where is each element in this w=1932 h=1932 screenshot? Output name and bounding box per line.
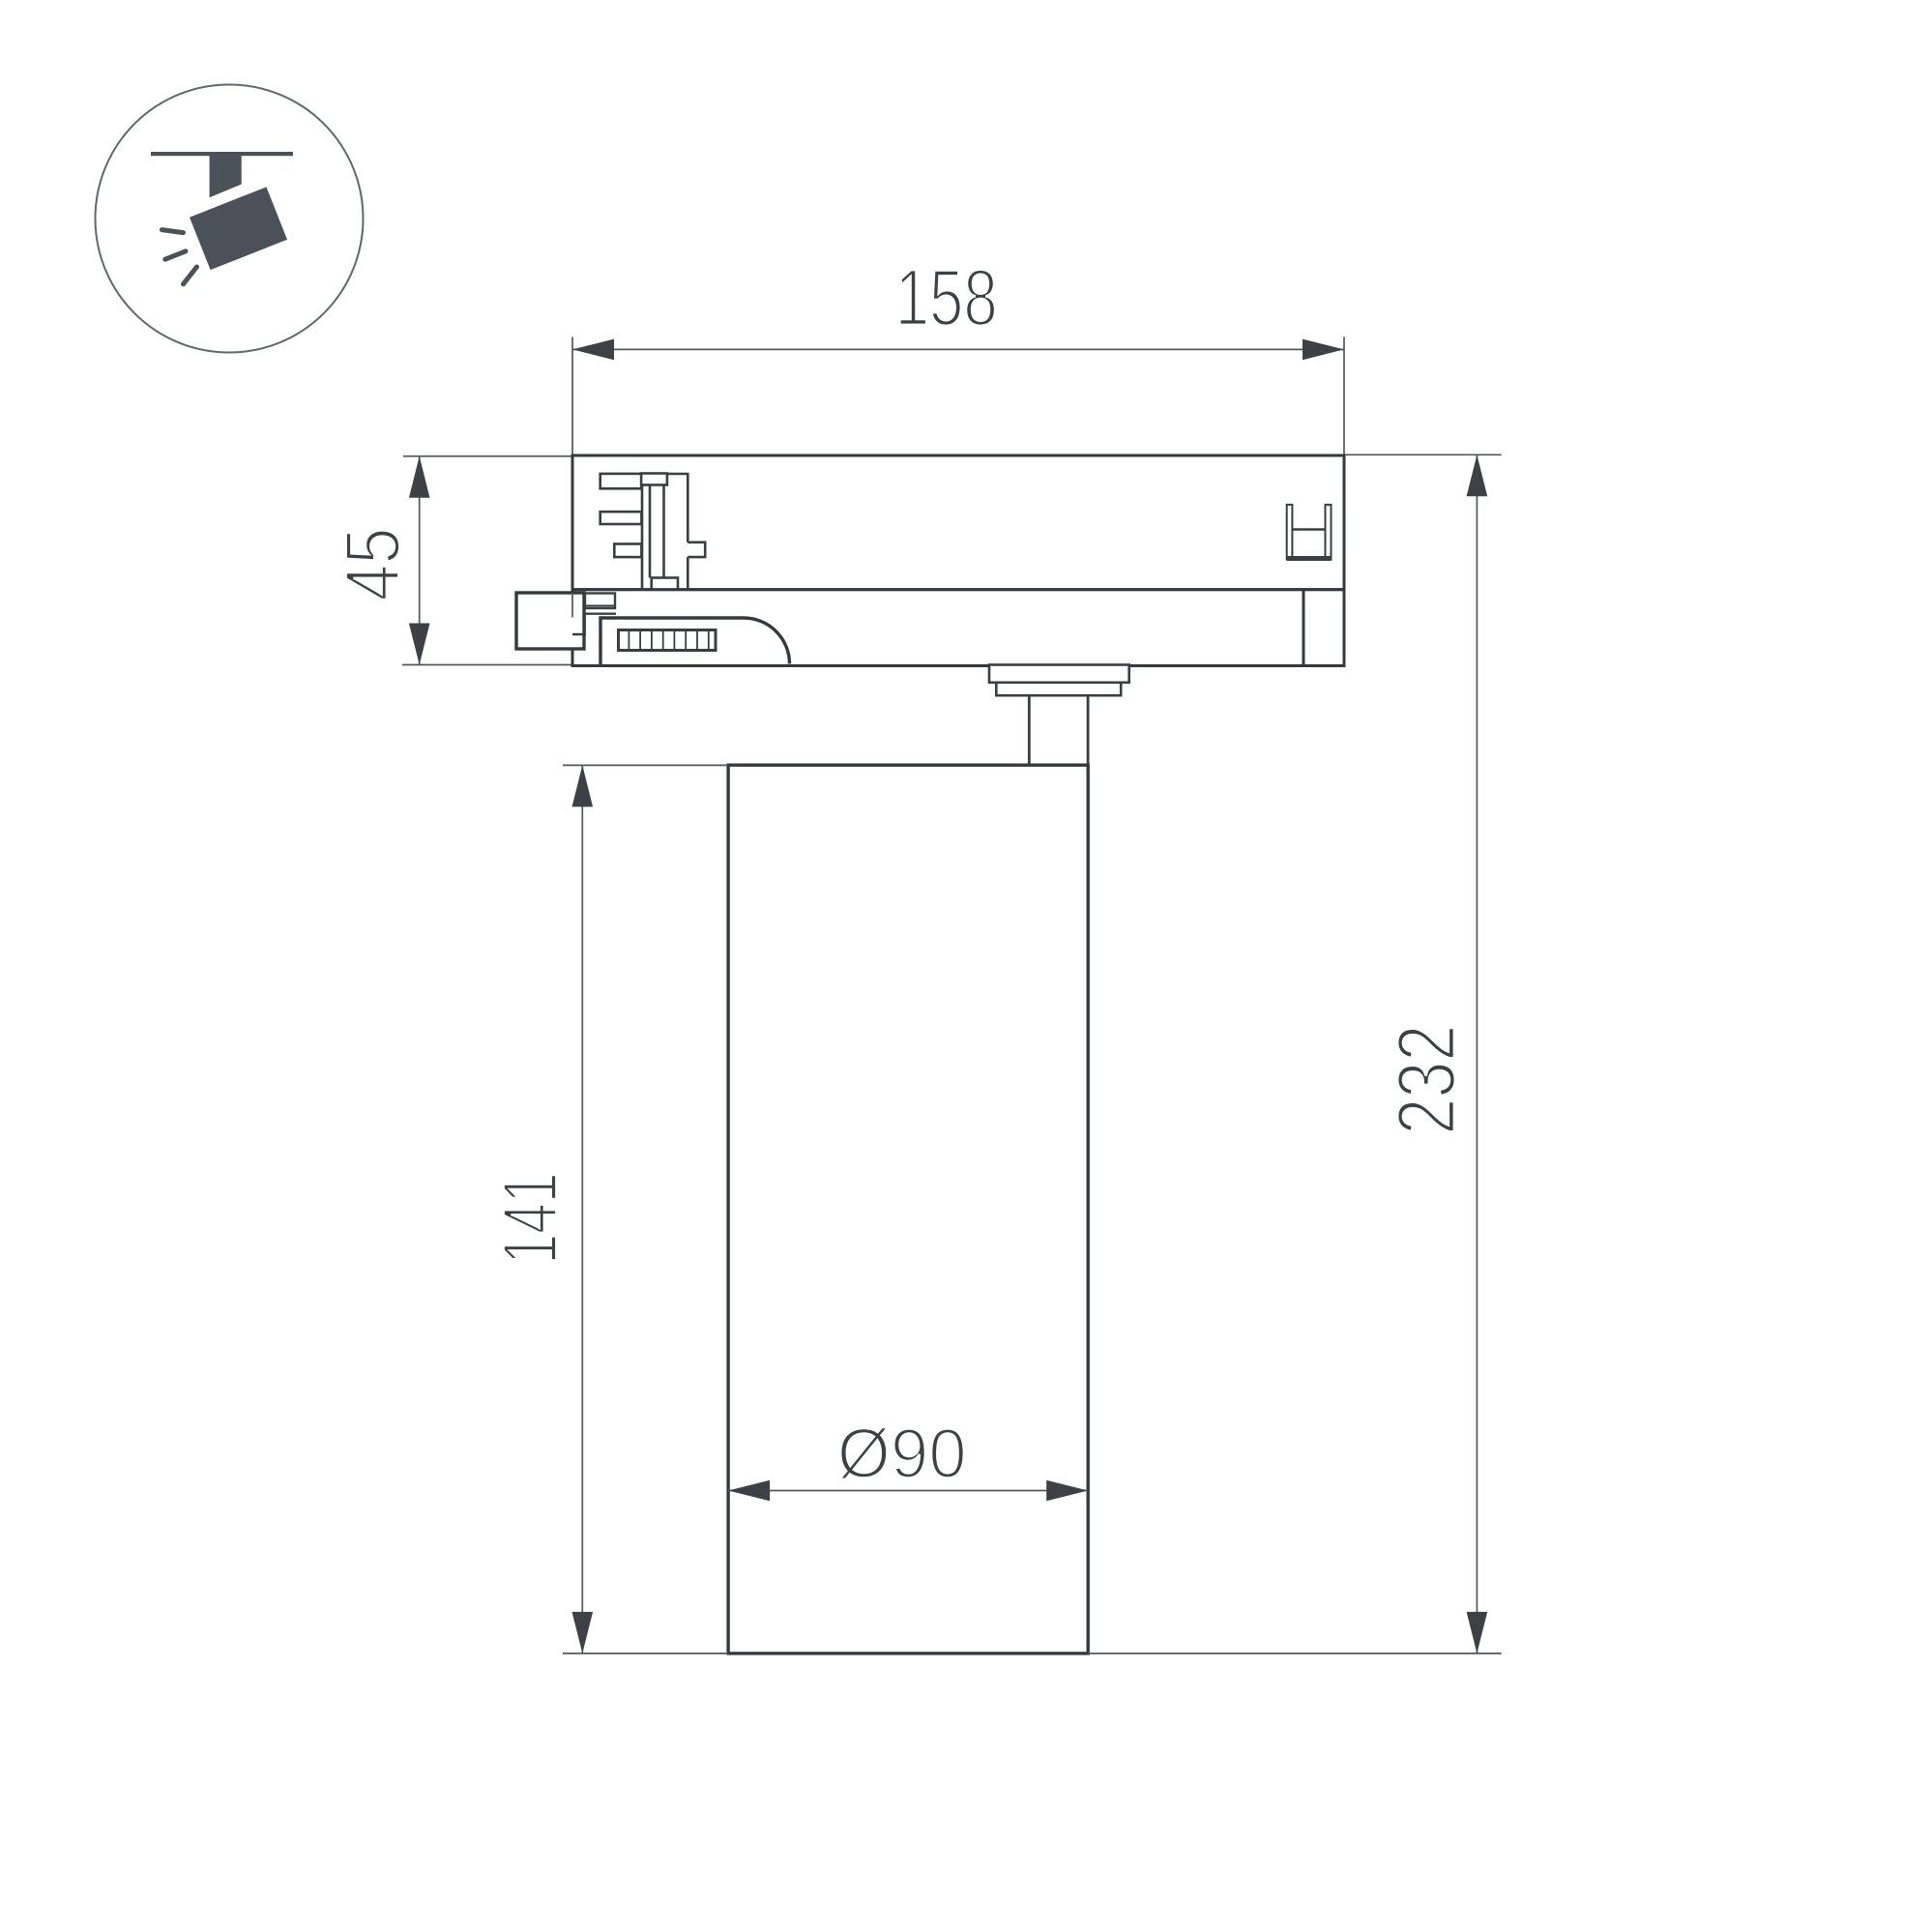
svg-text:45: 45 (330, 528, 416, 601)
svg-text:232: 232 (1381, 1025, 1472, 1135)
svg-text:158: 158 (895, 252, 998, 342)
svg-text:Ø90: Ø90 (837, 1416, 967, 1493)
svg-text:141: 141 (487, 1173, 573, 1265)
